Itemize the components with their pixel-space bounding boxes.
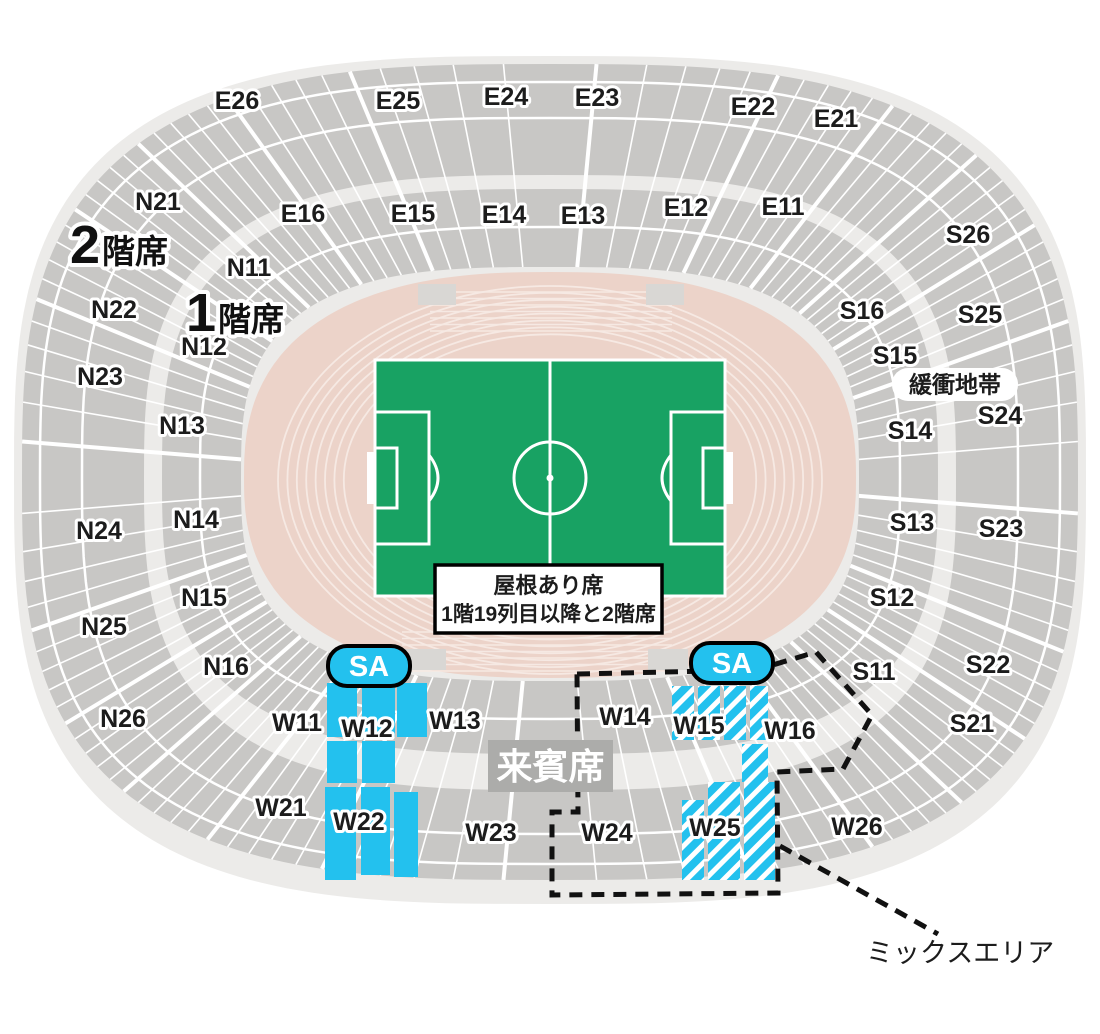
section-label-w26: W26 [831,813,882,841]
sa-badge-label: SA [349,651,389,683]
section-label-n24: N24 [76,517,122,545]
section-label-s22: S22 [966,651,1010,679]
sa-badge-label: SA [712,648,752,680]
sa-zone-solid [394,792,418,877]
sa-zone-hatched [742,744,768,782]
stadium-seating-map: ミックスエリアSASA来賓席緩衝地帯屋根あり席1階19列目以降と2階席E26E2… [0,0,1100,1034]
section-label-w11: W11 [272,709,322,737]
section-label-n14: N14 [173,506,219,534]
section-label-w13: W13 [429,707,480,735]
sa-zone-solid [327,741,357,783]
sa-zone-solid [397,683,427,737]
buffer-zone-label: 緩衝地帯 [909,372,1001,398]
section-label-s12: S12 [870,584,914,612]
roof-note-line1: 屋根あり席 [493,573,603,598]
roof-note-box: 屋根あり席1階19列目以降と2階席 [435,565,662,633]
section-label-w25: W25 [689,814,741,842]
section-label-s23: S23 [979,515,1023,543]
sa-zone-hatched [744,782,775,880]
section-label-n22: N22 [91,296,137,324]
soccer-pitch [367,360,733,596]
section-label-e22: E22 [731,93,775,121]
section-label-n11: N11 [227,254,272,282]
section-label-w14: W14 [599,703,651,731]
section-label-w22: W22 [333,808,384,836]
section-label-e26: E26 [215,87,259,115]
section-label-s13: S13 [890,509,934,537]
section-label-n23: N23 [77,363,123,391]
roof-note-line2: 1階19列目以降と2階席 [441,602,656,626]
section-label-s16: S16 [840,297,884,325]
section-label-e24: E24 [484,83,529,111]
section-label-e16: E16 [281,200,325,228]
section-label-e12: E12 [664,194,708,222]
section-label-e13: E13 [561,202,605,230]
goal [726,452,733,504]
section-label-n25: N25 [81,613,127,641]
section-label-n15: N15 [181,584,227,612]
section-label-w23: W23 [465,819,516,847]
goal [367,452,374,504]
section-label-w16: W16 [764,717,815,745]
section-label-e25: E25 [376,87,421,115]
section-label-s14: S14 [888,417,933,445]
section-label-w15: W15 [673,712,725,740]
section-label-w24: W24 [581,819,633,847]
center-spot [547,475,554,482]
section-label-n13: N13 [159,412,205,440]
section-label-s15: S15 [873,342,918,370]
section-label-s26: S26 [946,221,990,249]
section-label-w12: W12 [341,715,392,743]
section-label-s25: S25 [958,301,1003,329]
sa-zone-hatched [724,686,746,740]
section-label-s11: S11 [852,658,895,686]
track-side-block [646,284,684,305]
section-label-e23: E23 [575,84,619,112]
section-label-e21: E21 [814,105,859,133]
section-label-s21: S21 [950,710,995,738]
section-label-e15: E15 [391,200,436,228]
sa-zone-solid [362,741,395,783]
track-side-block [418,284,456,305]
track-side-block [648,649,688,670]
mix-area-label: ミックスエリア [866,938,1054,968]
section-label-e11: E11 [761,193,804,221]
seating-map-canvas: ミックスエリアSASA来賓席緩衝地帯屋根あり席1階19列目以降と2階席E26E2… [0,0,1100,1034]
section-label-s24: S24 [978,402,1023,430]
vip-seats-label: 来賓席 [496,746,604,787]
section-label-n21: N21 [135,188,181,216]
section-label-n26: N26 [100,705,146,733]
section-label-e14: E14 [482,201,527,229]
section-label-w21: W21 [255,794,307,822]
section-label-n16: N16 [203,653,249,681]
